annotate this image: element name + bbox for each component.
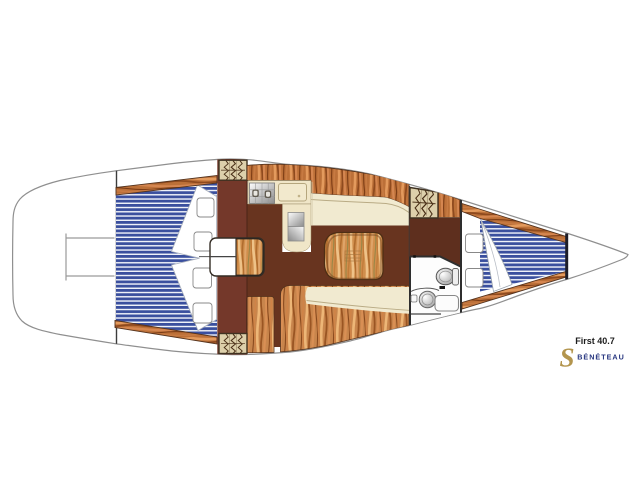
svg-text:First 40.7: First 40.7 — [575, 336, 615, 346]
svg-text:S: S — [559, 343, 574, 373]
svg-text:BÉNÉTEAU: BÉNÉTEAU — [577, 353, 625, 362]
